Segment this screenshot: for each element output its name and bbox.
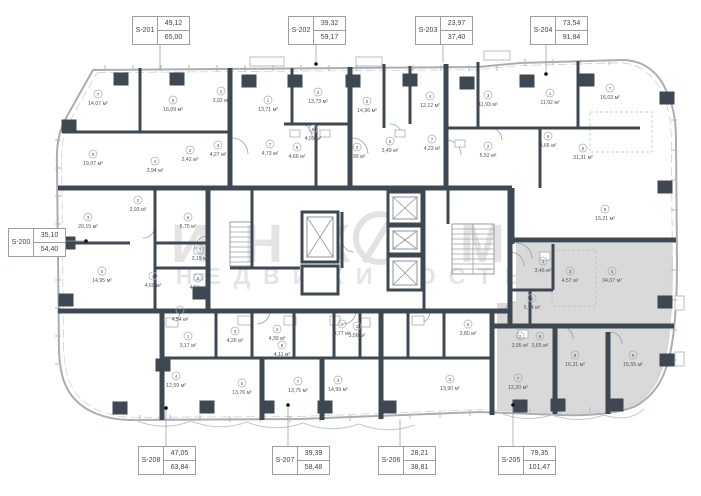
unit-areas: 35,1054,40 (34, 229, 65, 256)
room-area: 2,42 м² (182, 157, 199, 163)
column (382, 401, 397, 414)
room-number: 3 (487, 93, 490, 98)
dashed-zone-1 (590, 112, 652, 152)
column (551, 399, 566, 412)
room-label: 63,66 м² (540, 132, 557, 149)
room-number: 2 (317, 90, 320, 95)
room-area: 12,20 м² (508, 385, 528, 391)
room-label: 516,09 м² (163, 96, 183, 113)
unit-id: S-201 (133, 17, 158, 44)
room-number: 7 (269, 142, 272, 147)
room-number: 1 (187, 334, 190, 339)
unit-label-s-202[interactable]: S-20239,3259,17 (288, 16, 346, 45)
room-area: 14,07 м² (88, 101, 108, 107)
room-number: 5 (467, 322, 470, 327)
unit-id: S-203 (416, 17, 441, 44)
room-number: 6 (547, 134, 550, 139)
column (260, 401, 275, 414)
room-number: 7 (431, 137, 434, 142)
room-number: 4 (611, 269, 614, 274)
unit-living-area: 47,05 (164, 447, 195, 461)
room-number: 3 (87, 215, 90, 220)
room-area: 3,95 м² (512, 343, 529, 349)
room-number: 6 (389, 139, 392, 144)
room-label: 13,17 м² (180, 332, 197, 349)
unit-id: S-208 (139, 447, 164, 474)
room-number: 8 (574, 353, 577, 358)
room-area: 12,59 м² (166, 383, 186, 389)
unit-id: S-200 (9, 229, 34, 256)
unit-total-area: 65,00 (158, 31, 189, 44)
unit-areas: 39,3259,17 (314, 17, 345, 44)
room-area: 16,09 м² (163, 107, 183, 113)
room-label: 716,03 м² (600, 84, 620, 101)
room-area: 13,71 м² (258, 107, 278, 113)
room-label: 84,11 м² (274, 341, 291, 358)
room-area: 19,07 м² (83, 161, 103, 167)
room-label: 113,71 м² (258, 96, 278, 113)
room-label: 412,12 м² (420, 92, 440, 109)
column (318, 401, 333, 414)
balcony-right-2 (675, 352, 684, 366)
column (59, 294, 74, 307)
column (520, 75, 535, 88)
room-area: 12,12 м² (420, 103, 440, 109)
unit-areas: 39,3958,48 (298, 447, 329, 474)
room-number: 2 (137, 198, 140, 203)
fixture (412, 316, 424, 325)
room-area: 3,56 м² (349, 333, 366, 339)
unit-living-area: 35,10 (34, 229, 65, 243)
room-area: 13,75 м² (288, 388, 308, 394)
room-area: 15,55 м² (623, 362, 643, 368)
balcony-top-1 (250, 57, 284, 66)
room-area: 4,26 м² (227, 338, 244, 344)
room-area: 34,07 м² (602, 278, 622, 284)
unit-id: S-205 (499, 447, 524, 474)
balcony-scallops-left (135, 420, 415, 430)
room-area: 14,95 м² (92, 278, 112, 284)
room-label: 53,80 м² (460, 320, 477, 337)
unit-label-s-207[interactable]: S-20739,3958,48 (272, 446, 330, 475)
room-area: 16,31 м² (565, 362, 585, 368)
unit-areas: 79,35101,47 (524, 447, 555, 474)
room-area: 4,69 м² (145, 283, 162, 289)
room-number: 1 (542, 259, 545, 264)
room-label: 514,95 м² (92, 267, 112, 284)
unit-anchor-dot (286, 403, 290, 407)
room-number: 9 (632, 353, 635, 358)
room-number: 8 (296, 145, 299, 150)
room-number: 1 (199, 247, 202, 252)
unit-areas: 73,5491,84 (556, 17, 587, 44)
room-area: 4,27 м² (210, 152, 227, 158)
column (346, 75, 361, 88)
room-area: 3,93 м² (213, 98, 230, 104)
room-area: 5,52 м² (480, 153, 497, 159)
room-label: 22,42 м² (182, 146, 199, 163)
room-area: 20,15 м² (78, 224, 98, 230)
column (170, 73, 185, 86)
unit-total-area: 37,40 (441, 31, 472, 44)
room-number: 6 (312, 127, 315, 132)
room-number: 3 (569, 269, 572, 274)
room-label: 513,76 м² (232, 379, 252, 396)
room-label: 320,15 м² (78, 213, 98, 230)
unit-areas: 23,9737,40 (441, 17, 472, 44)
room-number: 1 (549, 91, 552, 96)
room-number: 1 (356, 324, 359, 329)
room-area: 14,96 м² (357, 108, 377, 114)
room-number: 8 (604, 207, 607, 212)
unit-anchor-dot (164, 406, 168, 410)
unit-areas: 47,0563,84 (164, 447, 195, 474)
fixture (290, 130, 300, 137)
room-number: 1 (267, 98, 270, 103)
fixture (395, 130, 405, 137)
elevator-shaft (302, 266, 338, 294)
column (200, 401, 215, 414)
room-area: 3,93 м² (130, 207, 147, 213)
unit-areas: 49,1265,00 (158, 17, 189, 44)
room-area: 4,09 м² (305, 136, 322, 142)
room-number: 5 (172, 98, 175, 103)
unit-label-s-200[interactable]: S-20035,1054,40 (8, 228, 66, 257)
room-number: 1 (220, 89, 223, 94)
room-number: 2 (449, 377, 452, 382)
room-label: 412,59 м² (166, 372, 186, 389)
column (580, 74, 595, 87)
room-area: 4,57 м² (562, 278, 579, 284)
unit-id: S-204 (531, 17, 556, 44)
room-number: 4 (152, 274, 155, 279)
room-label: 34,26 м² (227, 327, 244, 344)
column (114, 73, 129, 86)
room-area: 4,23 м² (424, 146, 441, 152)
column (460, 77, 475, 90)
unit-total-area: 58,48 (298, 461, 329, 474)
balcony-right-1 (675, 296, 684, 310)
unit-label-s-204[interactable]: S-20473,5491,84 (530, 16, 588, 45)
room-area: 15,21 м² (595, 216, 615, 222)
room-number: 6 (539, 334, 542, 339)
unit-total-area: 91,84 (556, 31, 587, 44)
unit-label-s-201[interactable]: S-20149,1265,00 (132, 16, 190, 45)
room-area: 31,31 м² (573, 155, 593, 161)
unit-living-area: 39,32 (314, 17, 345, 31)
room-label: 25,52 м² (480, 142, 497, 159)
unit-total-area: 54,40 (34, 243, 65, 256)
column (658, 181, 673, 194)
unit-living-area: 73,54 (556, 17, 587, 31)
room-area: 13,73 м² (308, 99, 328, 105)
unit-anchor-dot (544, 72, 548, 76)
column (62, 120, 77, 133)
unit-total-area: 101,47 (524, 461, 555, 474)
room-area: 3,94 м² (147, 168, 164, 174)
room-number: 2 (487, 144, 490, 149)
room-number: 5 (582, 146, 585, 151)
room-number: 3 (234, 329, 237, 334)
floor-plan-svg: ИНКОМ НЕДВИЖИМОСТЬ 714,07 (0, 0, 701, 496)
room-label: 111,92 м² (540, 89, 560, 106)
room-area: 11,93 м² (478, 102, 498, 108)
unit-anchor-dot (84, 239, 88, 243)
room-label: 619,07 м² (83, 150, 103, 167)
unit-total-area: 59,17 (314, 31, 345, 44)
room-area: 4,73 м² (262, 151, 279, 157)
unit-id: S-202 (289, 17, 314, 44)
room-number: 2 (276, 327, 279, 332)
room-number: 4 (429, 94, 432, 99)
fixture (455, 140, 465, 147)
unit-total-area: 63,84 (164, 461, 195, 474)
room-label: 311,93 м² (478, 91, 498, 108)
room-area: 5,74 м² (524, 305, 541, 311)
floor-plan-stage: ИНКОМ НЕДВИЖИМОСТЬ 714,07 (0, 0, 701, 496)
room-label: 24,39 м² (269, 325, 286, 342)
room-number: 7 (297, 379, 300, 384)
unit-living-area: 39,39 (298, 447, 329, 461)
room-label: 43,94 м² (147, 157, 164, 174)
room-number: 4 (175, 374, 178, 379)
room-label: 314,99 м² (328, 376, 348, 393)
unit-living-area: 28,21 (404, 447, 435, 461)
room-area: 3,49 м² (382, 148, 399, 154)
room-label: 63,49 м² (382, 137, 399, 154)
unit-areas: 28,2138,81 (404, 447, 435, 474)
room-area: 5,75 м² (180, 224, 197, 230)
balcony-top-2 (356, 57, 382, 66)
room-area: 14,99 м² (328, 387, 348, 393)
column (513, 400, 528, 413)
room-area: 2,99 м² (349, 154, 366, 160)
unit-label-s-206[interactable]: S-20628,2138,81 (378, 446, 436, 475)
room-label: 74,23 м² (424, 135, 441, 152)
room-number: 3 (356, 145, 359, 150)
room-label: 213,90 м² (440, 375, 460, 392)
room-number: 3 (217, 143, 220, 148)
room-number: 4 (154, 159, 157, 164)
room-number: 3 (337, 378, 340, 383)
room-area: 3,17 м² (180, 343, 197, 349)
unit-label-s-205[interactable]: S-20579,35101,47 (498, 446, 556, 475)
column (660, 354, 675, 367)
room-label: 74,73 м² (262, 140, 279, 157)
room-label: 13,93 м² (213, 87, 230, 104)
room-number: 4 (341, 322, 344, 327)
room-area: 3,65 м² (532, 343, 549, 349)
watermark-tagline: НЕДВИЖИМОСТЬ (176, 263, 534, 289)
room-label: 713,75 м² (288, 377, 308, 394)
room-number: 5 (366, 99, 369, 104)
room-area: 11,92 м² (540, 100, 560, 106)
unit-anchor-dot (511, 403, 515, 407)
room-label: 531,31 м² (573, 144, 593, 161)
room-label: 213,73 м² (308, 88, 328, 105)
room-number: 6 (187, 215, 190, 220)
unit-id: S-207 (273, 447, 298, 474)
room-area: 16,03 м² (600, 95, 620, 101)
room-area: 3,19 м² (192, 256, 209, 262)
room-area: 3,66 м² (540, 143, 557, 149)
room-area: 13,90 м² (440, 386, 460, 392)
column (658, 296, 673, 309)
balcony-top-3 (484, 51, 510, 60)
room-number: 8 (197, 276, 200, 281)
column (609, 399, 624, 412)
fixture (238, 316, 252, 325)
column (660, 92, 675, 105)
watermark: ИНКОМ НЕДВИЖИМОСТЬ (171, 214, 539, 289)
room-label: 84,66 м² (289, 143, 306, 160)
unit-anchor-dot (314, 62, 318, 66)
unit-total-area: 38,81 (404, 461, 435, 474)
room-number: 5 (531, 296, 534, 301)
room-area: 3,46 м² (535, 268, 552, 274)
room-area: 4,51 м² (190, 285, 207, 291)
room-number: 7 (179, 308, 182, 313)
room-number: 5 (241, 381, 244, 386)
room-number: 6 (92, 152, 95, 157)
column (288, 75, 303, 88)
room-label: 514,96 м² (357, 97, 377, 114)
room-area: 13,76 м² (232, 390, 252, 396)
room-number: 2 (519, 334, 522, 339)
column (113, 402, 128, 415)
fixture (320, 130, 330, 137)
unit-label-s-203[interactable]: S-20323,9737,40 (415, 16, 473, 45)
room-label: 44,69 м² (145, 272, 162, 289)
column (242, 75, 257, 88)
unit-living-area: 23,97 (441, 17, 472, 31)
room-area: 4,11 м² (274, 352, 291, 358)
room-number: 8 (281, 343, 284, 348)
room-label: 34,27 м² (210, 141, 227, 158)
room-area: 4,66 м² (289, 154, 306, 160)
room-number: 7 (517, 376, 520, 381)
room-label: 714,07 м² (88, 90, 108, 107)
unit-id: S-206 (379, 447, 404, 474)
unit-living-area: 79,35 (524, 447, 555, 461)
room-label: 23,93 м² (130, 196, 147, 213)
unit-living-area: 49,12 (158, 17, 189, 31)
room-number: 7 (609, 86, 612, 91)
room-area: 3,80 м² (460, 331, 477, 337)
room-number: 7 (97, 92, 100, 97)
room-number: 5 (101, 269, 104, 274)
room-area: 4,54 м² (172, 317, 189, 323)
column (156, 359, 171, 372)
room-label: 815,21 м² (595, 205, 615, 222)
column (403, 74, 418, 87)
room-number: 2 (189, 148, 192, 153)
room-label: 64,09 м² (305, 125, 322, 142)
unit-label-s-208[interactable]: S-20847,0563,84 (138, 446, 196, 475)
